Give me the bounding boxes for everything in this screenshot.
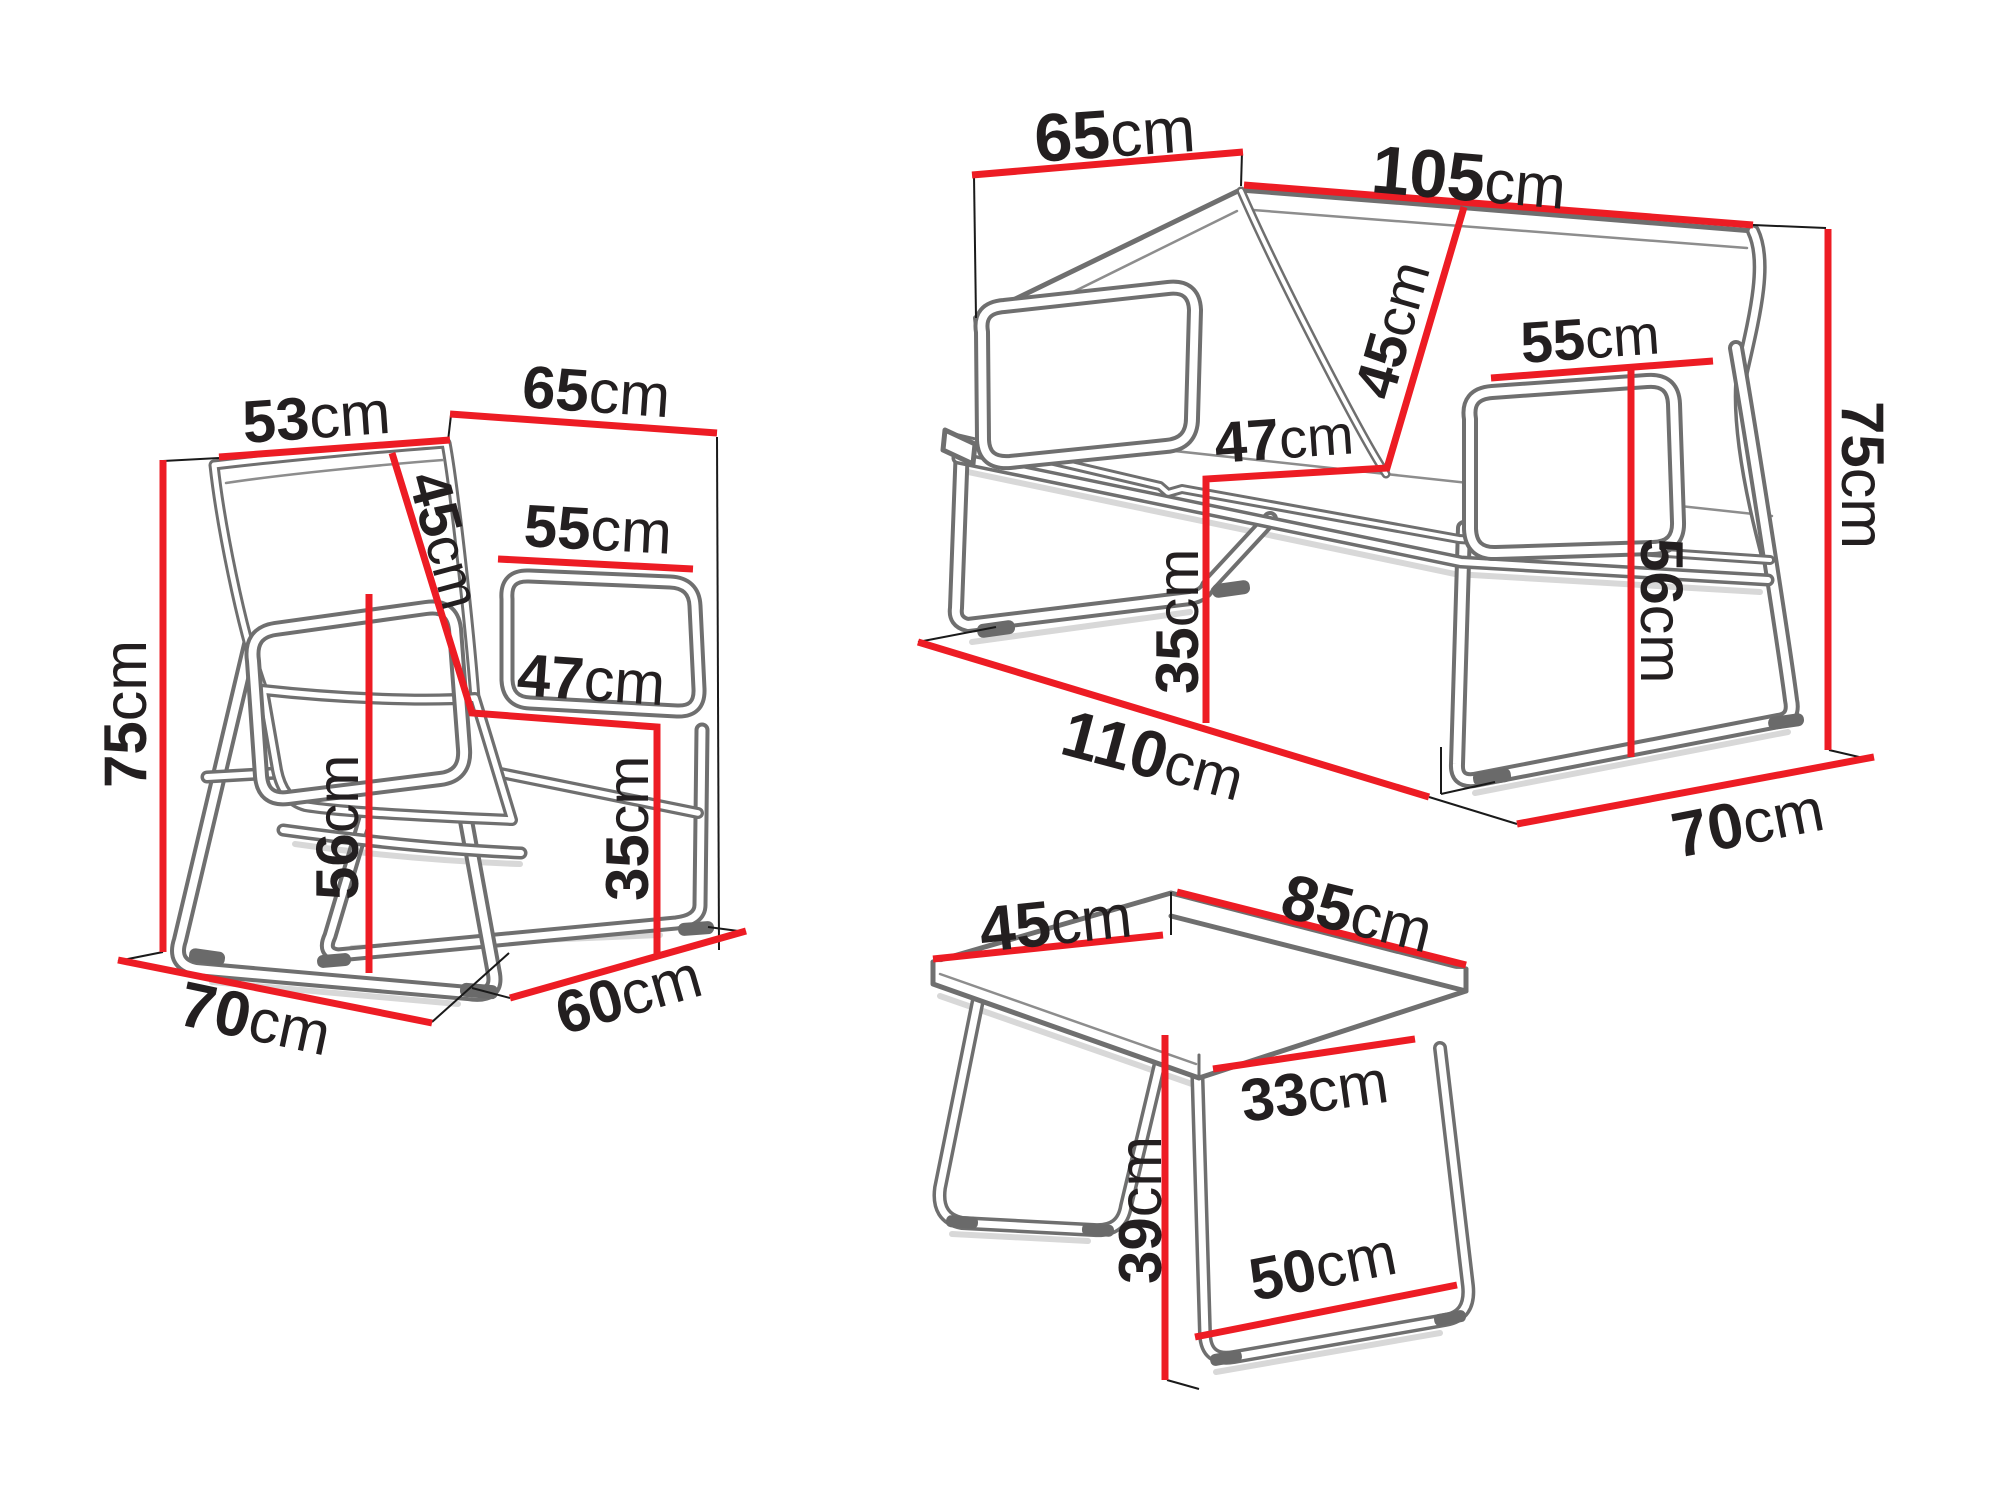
svg-text:53cm: 53cm [240,378,392,456]
svg-text:55cm: 55cm [1518,301,1661,376]
svg-text:47cm: 47cm [1212,401,1355,476]
svg-text:55cm: 55cm [522,491,673,567]
svg-text:65cm: 65cm [1032,90,1198,177]
svg-text:35cm: 35cm [1144,549,1211,694]
svg-text:56cm: 56cm [304,755,371,900]
svg-text:35cm: 35cm [594,756,661,901]
svg-text:75cm: 75cm [1829,401,1897,549]
svg-text:47cm: 47cm [515,640,667,718]
svg-text:75cm: 75cm [91,640,159,788]
svg-text:39cm: 39cm [1106,1136,1174,1284]
svg-text:65cm: 65cm [520,352,672,430]
svg-text:56cm: 56cm [1628,538,1695,683]
